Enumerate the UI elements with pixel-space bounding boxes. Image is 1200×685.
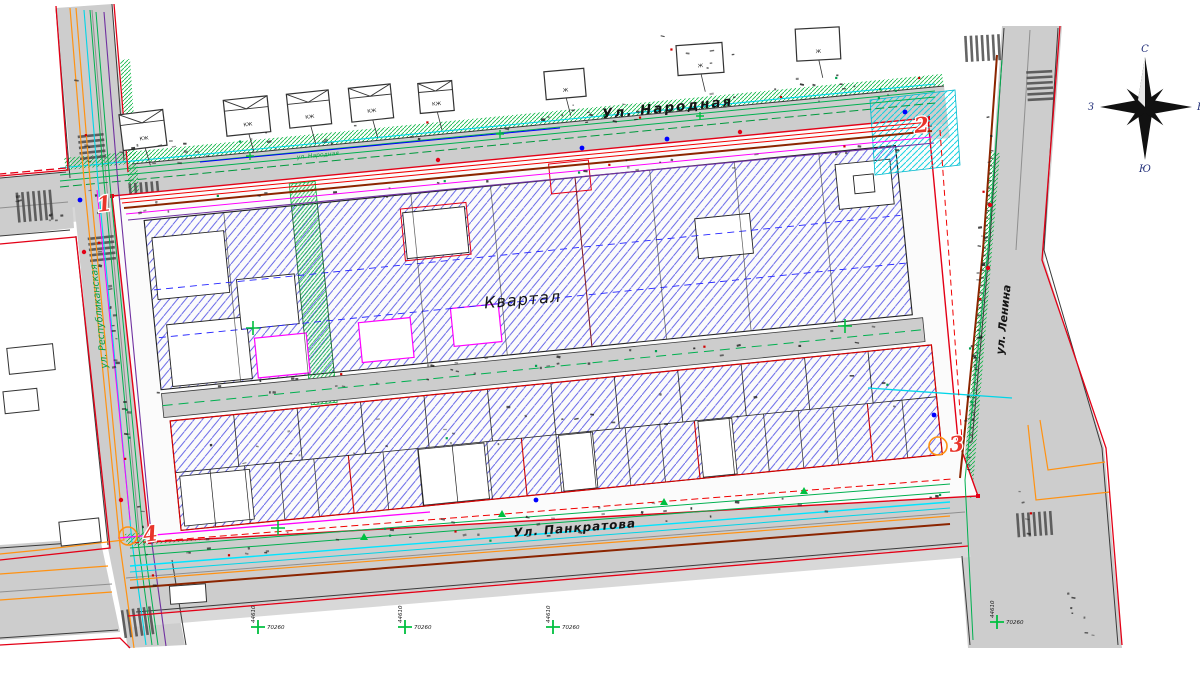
decoration bbox=[169, 140, 173, 142]
decoration bbox=[152, 574, 154, 576]
decoration bbox=[49, 219, 51, 221]
decoration bbox=[572, 104, 574, 105]
decoration bbox=[733, 96, 735, 98]
decoration bbox=[497, 443, 499, 445]
decoration bbox=[127, 411, 131, 414]
decoration bbox=[299, 454, 301, 456]
decoration bbox=[970, 401, 972, 403]
corner-marker-2: 2 bbox=[912, 112, 930, 138]
site-plan-map: КЖКЖКЖКЖКЖЖЖЖ 70260 44610 70260 44610 70… bbox=[0, 0, 1200, 685]
house: Ж bbox=[676, 42, 725, 93]
decoration bbox=[882, 382, 886, 384]
decoration bbox=[935, 495, 939, 498]
decoration bbox=[295, 378, 298, 380]
decoration bbox=[206, 155, 209, 157]
decoration bbox=[977, 245, 981, 247]
decoration bbox=[289, 453, 292, 454]
decoration bbox=[389, 187, 391, 189]
decoration bbox=[588, 362, 591, 364]
site-plan-canvas: КЖКЖКЖКЖКЖЖЖЖ 70260 44610 70260 44610 70… bbox=[0, 0, 1200, 685]
decoration bbox=[544, 68, 586, 99]
compass-north-label: С bbox=[1141, 44, 1149, 55]
decoration bbox=[986, 116, 989, 118]
decoration bbox=[895, 149, 899, 151]
decoration bbox=[981, 263, 985, 266]
decoration bbox=[450, 442, 452, 443]
compass-east-label: В bbox=[1196, 102, 1200, 113]
decoration bbox=[840, 83, 843, 85]
decoration bbox=[525, 415, 528, 418]
decoration bbox=[218, 385, 221, 387]
decoration bbox=[84, 144, 88, 147]
decoration bbox=[798, 345, 801, 347]
decoration bbox=[348, 84, 393, 122]
decoration bbox=[608, 164, 610, 166]
decoration bbox=[887, 94, 889, 96]
decoration bbox=[228, 554, 230, 556]
decoration bbox=[1067, 592, 1070, 594]
compass-star bbox=[1100, 57, 1192, 160]
decoration bbox=[778, 508, 780, 510]
decoration bbox=[547, 116, 549, 118]
decoration bbox=[710, 62, 713, 64]
decoration bbox=[269, 391, 271, 393]
decoration bbox=[796, 78, 799, 80]
decoration bbox=[157, 392, 160, 394]
decoration bbox=[986, 212, 988, 213]
house: Ж bbox=[795, 27, 842, 79]
decoration bbox=[878, 97, 880, 99]
decoration bbox=[977, 272, 980, 273]
decoration bbox=[210, 444, 212, 446]
decoration bbox=[774, 88, 776, 90]
decoration bbox=[780, 96, 782, 98]
decoration bbox=[263, 463, 265, 465]
decoration bbox=[354, 125, 357, 126]
decoration bbox=[601, 513, 605, 515]
decoration bbox=[706, 67, 708, 69]
decoration bbox=[571, 110, 574, 112]
decoration bbox=[291, 377, 295, 379]
decoration bbox=[386, 196, 388, 198]
decoration bbox=[1083, 616, 1085, 618]
decoration bbox=[526, 516, 528, 518]
decoration bbox=[676, 42, 724, 75]
decoration bbox=[195, 151, 199, 153]
decoration bbox=[446, 437, 448, 439]
corner-marker-3: 3 bbox=[948, 431, 965, 457]
decoration bbox=[893, 405, 896, 407]
decoration bbox=[112, 330, 116, 332]
decoration bbox=[108, 285, 112, 288]
cross-label-h: 70260 bbox=[267, 625, 285, 631]
decoration bbox=[732, 167, 736, 169]
decoration bbox=[114, 359, 118, 361]
decoration bbox=[835, 153, 838, 156]
decoration bbox=[119, 109, 167, 150]
decoration bbox=[239, 140, 241, 142]
decoration bbox=[818, 100, 820, 102]
decoration bbox=[1070, 607, 1072, 609]
decoration bbox=[1071, 612, 1073, 613]
house-label: КЖ bbox=[243, 122, 253, 129]
decoration bbox=[124, 458, 126, 460]
decoration bbox=[992, 34, 996, 60]
decoration bbox=[206, 538, 210, 540]
decoration bbox=[389, 535, 391, 537]
decoration bbox=[427, 364, 429, 367]
cross-label-v: 44610 bbox=[990, 600, 996, 618]
decoration bbox=[854, 86, 856, 88]
decoration bbox=[1030, 512, 1032, 514]
decoration bbox=[153, 584, 157, 586]
decoration bbox=[217, 195, 219, 197]
decoration bbox=[477, 534, 479, 536]
decoration bbox=[812, 84, 815, 87]
decoration bbox=[333, 191, 337, 193]
decoration bbox=[561, 114, 563, 116]
house-label: КЖ bbox=[139, 135, 149, 142]
decoration bbox=[1085, 632, 1089, 634]
decoration bbox=[693, 347, 695, 349]
decoration bbox=[287, 532, 289, 534]
survey-cross: 70260 44610 bbox=[546, 605, 580, 634]
decoration bbox=[188, 552, 191, 554]
decoration bbox=[970, 36, 974, 62]
decoration bbox=[474, 372, 477, 374]
decoration bbox=[1018, 491, 1020, 492]
decoration bbox=[703, 346, 705, 348]
decoration bbox=[598, 507, 600, 509]
decoration bbox=[122, 408, 126, 410]
decoration bbox=[444, 180, 446, 182]
decoration bbox=[250, 138, 252, 139]
decoration bbox=[670, 159, 673, 162]
decoration bbox=[979, 298, 981, 300]
decoration bbox=[540, 367, 542, 369]
decoration bbox=[266, 550, 269, 552]
decoration bbox=[659, 162, 661, 163]
decoration bbox=[578, 171, 580, 173]
decoration bbox=[152, 163, 156, 164]
decoration bbox=[551, 518, 555, 519]
decoration bbox=[978, 226, 982, 229]
decoration bbox=[128, 437, 130, 439]
decoration bbox=[701, 74, 705, 92]
decoration bbox=[835, 77, 837, 79]
decoration bbox=[661, 35, 665, 37]
decoration bbox=[409, 537, 411, 538]
decoration bbox=[177, 162, 182, 164]
cross-label-h: 70260 bbox=[1006, 620, 1024, 626]
decoration bbox=[626, 159, 628, 161]
decoration bbox=[986, 35, 990, 61]
decoration bbox=[670, 48, 672, 50]
decoration bbox=[426, 121, 428, 123]
decoration bbox=[979, 336, 982, 338]
decoration bbox=[116, 362, 120, 364]
decoration bbox=[85, 134, 87, 136]
decoration bbox=[879, 88, 881, 90]
decoration bbox=[819, 60, 823, 78]
decoration bbox=[384, 528, 386, 530]
decoration bbox=[131, 147, 135, 150]
decoration bbox=[732, 54, 735, 56]
decoration bbox=[977, 315, 979, 317]
decoration bbox=[858, 145, 862, 147]
decoration bbox=[690, 507, 692, 510]
decoration bbox=[800, 83, 804, 86]
decoration bbox=[248, 547, 251, 550]
decoration bbox=[335, 385, 338, 386]
decoration bbox=[969, 347, 971, 349]
decoration bbox=[410, 136, 414, 138]
decoration bbox=[964, 36, 968, 62]
decoration bbox=[664, 423, 668, 425]
decoration bbox=[939, 494, 941, 496]
decoration bbox=[929, 497, 931, 499]
decoration bbox=[655, 350, 657, 352]
decoration bbox=[123, 401, 126, 403]
decoration bbox=[710, 515, 712, 517]
decoration bbox=[50, 213, 52, 215]
decoration bbox=[126, 433, 130, 435]
decoration bbox=[886, 384, 888, 386]
decoration bbox=[340, 373, 342, 375]
decoration bbox=[486, 180, 489, 183]
decoration bbox=[981, 235, 983, 236]
house-label: КЖ bbox=[305, 114, 315, 121]
decoration bbox=[119, 152, 123, 153]
house-label: КЖ bbox=[367, 108, 377, 115]
decoration bbox=[627, 166, 630, 169]
decoration bbox=[850, 375, 854, 377]
compass-rose: С Ю З В bbox=[1088, 44, 1200, 175]
decoration bbox=[541, 118, 545, 121]
house-label: КЖ bbox=[432, 101, 442, 108]
decoration bbox=[535, 365, 537, 367]
decoration bbox=[98, 242, 100, 244]
decoration bbox=[845, 152, 847, 155]
decoration bbox=[454, 530, 456, 532]
decoration bbox=[824, 510, 828, 513]
decoration bbox=[443, 429, 447, 430]
decoration bbox=[60, 214, 63, 216]
decoration bbox=[737, 416, 739, 418]
crosswalk-zebra bbox=[964, 34, 1001, 62]
decoration bbox=[113, 314, 117, 316]
compass-west-label: З bbox=[1088, 102, 1094, 113]
decoration bbox=[982, 191, 984, 193]
decoration bbox=[975, 35, 979, 61]
decoration bbox=[659, 413, 661, 415]
decoration bbox=[183, 143, 186, 145]
decoration bbox=[264, 192, 267, 194]
decoration bbox=[895, 90, 897, 92]
decoration bbox=[795, 27, 841, 61]
decoration bbox=[975, 369, 978, 370]
decoration bbox=[981, 35, 985, 61]
decoration bbox=[967, 396, 970, 397]
survey-cross: 70260 44610 bbox=[398, 605, 432, 634]
decoration bbox=[971, 345, 973, 347]
decoration bbox=[967, 418, 969, 420]
decoration bbox=[782, 498, 784, 500]
house-label: Ж bbox=[698, 63, 704, 69]
decoration bbox=[836, 74, 838, 76]
cross-label-h: 70260 bbox=[414, 625, 432, 631]
decoration bbox=[964, 419, 968, 422]
cross-label-h: 70260 bbox=[562, 625, 580, 631]
decoration bbox=[583, 170, 587, 172]
decoration bbox=[55, 219, 58, 221]
compass-south-label: Ю bbox=[1138, 164, 1151, 175]
decoration bbox=[830, 330, 833, 332]
decoration bbox=[665, 520, 667, 522]
decoration bbox=[506, 406, 510, 409]
decoration bbox=[207, 547, 211, 550]
decoration bbox=[489, 540, 491, 542]
decoration bbox=[286, 90, 331, 128]
decoration bbox=[973, 414, 975, 416]
decoration bbox=[223, 96, 271, 136]
cross-label-v: 44610 bbox=[398, 605, 404, 623]
cross-label-v: 44610 bbox=[251, 605, 257, 623]
decoration bbox=[629, 349, 631, 351]
decoration bbox=[918, 77, 920, 79]
road-west-top bbox=[0, 172, 74, 236]
cross-label-v: 44610 bbox=[546, 605, 552, 623]
decoration bbox=[611, 422, 615, 424]
house-label: Ж bbox=[816, 49, 822, 55]
decoration bbox=[843, 145, 845, 147]
